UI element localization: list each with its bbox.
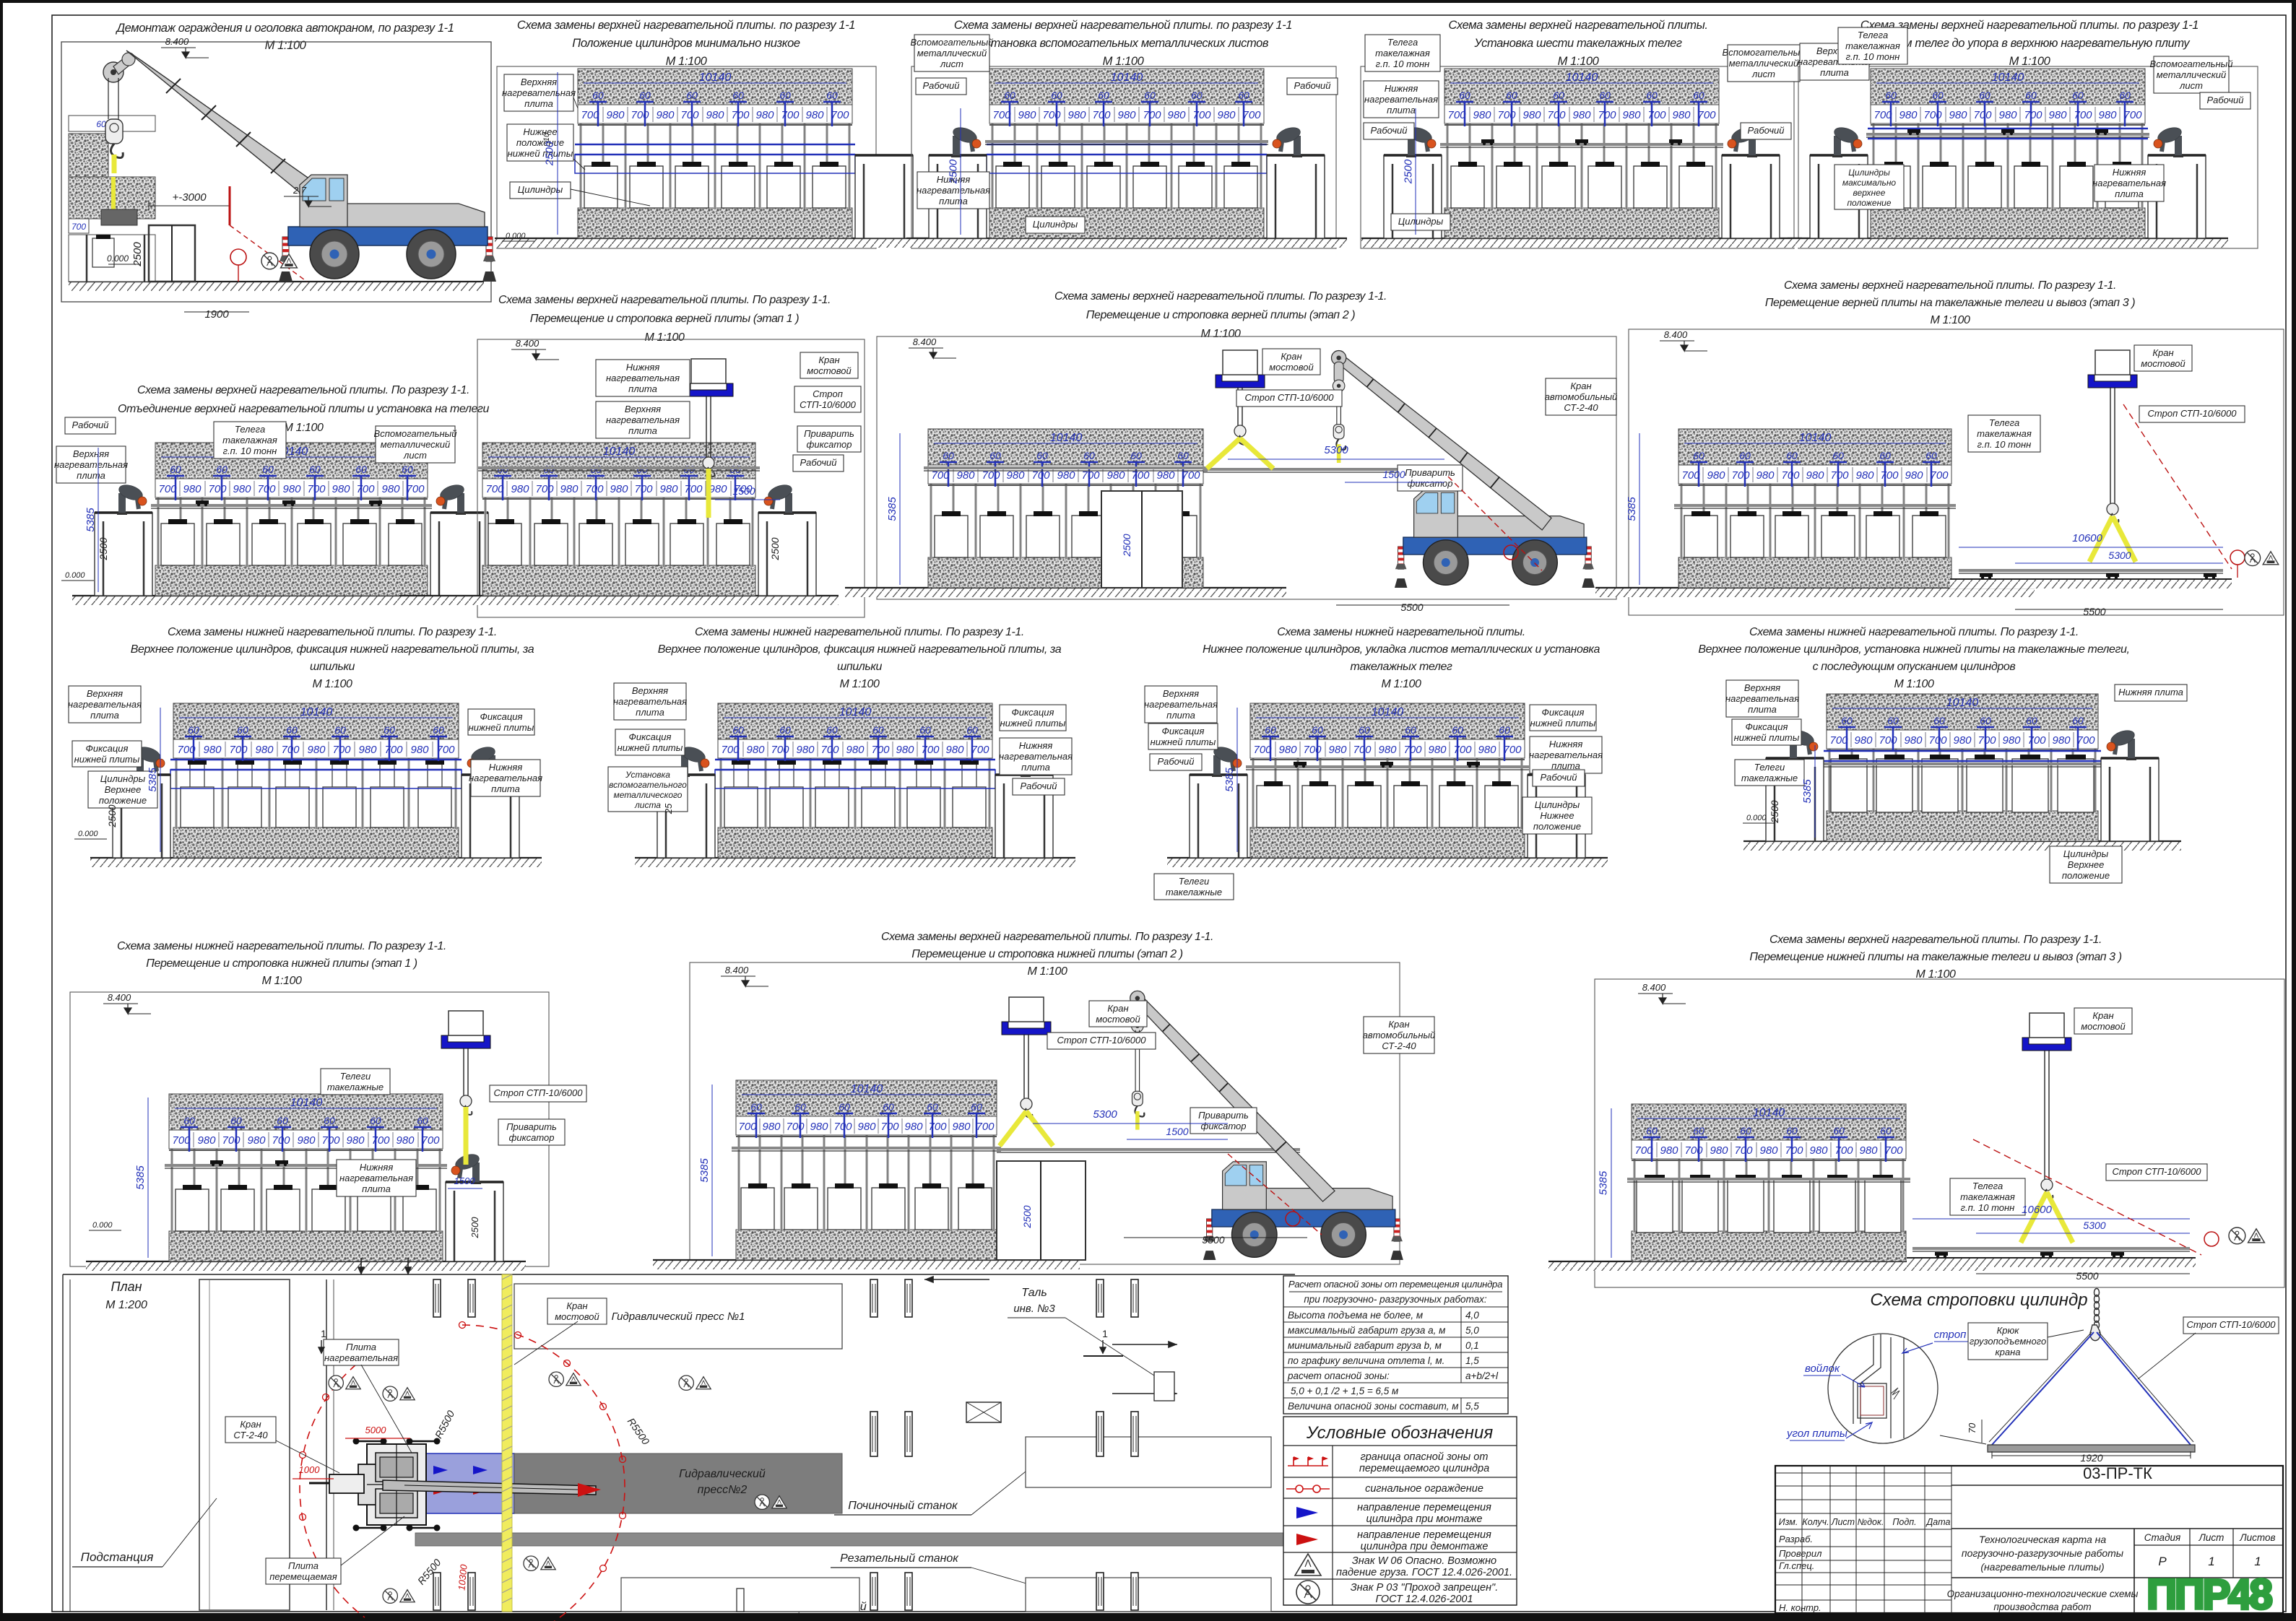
svg-text:Расчет опасной зоны от перемещ: Расчет опасной зоны от перемещения цилин… (1288, 1279, 1502, 1290)
svg-text:980: 980 (1117, 109, 1136, 121)
svg-text:положение: положение (516, 137, 564, 148)
svg-text:980: 980 (396, 1134, 415, 1147)
svg-text:Рабочий: Рабочий (1294, 80, 1330, 91)
svg-text:Фиксация: Фиксация (1012, 707, 1054, 718)
svg-text:980: 980 (332, 483, 350, 495)
svg-text:Схема замены нижней нагревател: Схема замены нижней нагревательной плиты… (1277, 626, 1525, 638)
svg-text:плита: плита (362, 1183, 391, 1194)
svg-text:980: 980 (1809, 1144, 1828, 1157)
svg-text:металлический: металлический (1729, 58, 1799, 69)
svg-text:Кран: Кран (240, 1419, 261, 1430)
svg-text:60: 60 (1098, 90, 1109, 101)
svg-text:Плита: Плита (288, 1560, 319, 1571)
svg-text:Фиксация: Фиксация (1746, 721, 1788, 732)
svg-text:плита: плита (1748, 704, 1777, 715)
svg-text:980: 980 (410, 744, 429, 756)
svg-text:5300: 5300 (1093, 1108, 1117, 1121)
svg-text:980: 980 (610, 483, 628, 495)
svg-text:М 1:100: М 1:100 (1027, 965, 1067, 978)
svg-text:980: 980 (511, 483, 529, 495)
svg-text:при погрузочно- разгрузочных р: при погрузочно- разгрузочных работах: (1304, 1294, 1487, 1305)
svg-text:1500: 1500 (732, 485, 755, 497)
svg-text:Телега: Телега (1387, 37, 1418, 48)
svg-text:Телега: Телега (1972, 1181, 2003, 1191)
svg-text:мостовой: мостовой (2141, 358, 2185, 369)
svg-text:60: 60 (779, 90, 791, 101)
svg-text:Гл.спец.: Гл.спец. (1779, 1560, 1814, 1571)
svg-text:План: План (111, 1279, 142, 1294)
svg-text:Дата: Дата (1925, 1517, 1951, 1527)
svg-text:плита: плита (636, 707, 664, 718)
svg-text:700: 700 (2123, 109, 2142, 121)
svg-text:700: 700 (680, 109, 699, 121)
svg-text:мостовой: мостовой (1269, 362, 1314, 373)
svg-text:положение: положение (1847, 198, 1891, 208)
svg-text:Нижнее: Нижнее (1540, 810, 1574, 821)
svg-text:700: 700 (222, 1134, 241, 1147)
svg-text:плита: плита (491, 783, 520, 794)
svg-text:Схема замены верхней нагревате: Схема замены верхней нагревательной плит… (137, 384, 469, 396)
svg-text:нагревательная: нагревательная (1529, 749, 1603, 760)
svg-text:М 1:100: М 1:100 (283, 422, 324, 434)
svg-text:60: 60 (1265, 724, 1276, 736)
svg-text:700: 700 (684, 483, 703, 495)
svg-text:700: 700 (1598, 109, 1616, 121)
svg-text:60: 60 (943, 450, 954, 461)
svg-text:нагревательная: нагревательная (502, 87, 576, 98)
svg-text:нагревательная: нагревательная (917, 185, 990, 196)
svg-text:60: 60 (794, 1101, 806, 1113)
svg-text:сигнальное ограждение: сигнальное ограждение (1365, 1483, 1483, 1495)
svg-text:5,0 + 0,1 /2 + 1,: 5,0 + 0,1 /2 + 1,5 = 6,5 м (1291, 1386, 1398, 1396)
svg-text:Схема замены верхней нагревате: Схема замены верхней нагревательной плит… (1784, 279, 2116, 292)
svg-text:700: 700 (2076, 734, 2095, 747)
svg-text:шпильки: шпильки (310, 661, 355, 673)
svg-text:60: 60 (592, 90, 604, 101)
svg-text:700: 700 (384, 744, 403, 756)
svg-text:980: 980 (1756, 469, 1775, 482)
svg-text:60: 60 (188, 724, 199, 736)
svg-text:60: 60 (402, 464, 413, 475)
svg-text:60: 60 (1177, 450, 1189, 461)
svg-text:8.400: 8.400 (165, 36, 189, 47)
svg-text:Подстанция: Подстанция (81, 1550, 154, 1564)
svg-text:980: 980 (282, 483, 301, 495)
svg-text:700: 700 (1503, 744, 1522, 756)
svg-text:Лист: Лист (2198, 1532, 2224, 1543)
svg-text:8.400: 8.400 (1664, 329, 1688, 340)
svg-text:700: 700 (1873, 109, 1892, 121)
svg-text:1: 1 (321, 1328, 326, 1339)
svg-text:Рабочий: Рабочий (1020, 781, 1057, 791)
svg-text:60: 60 (216, 464, 228, 475)
svg-text:700: 700 (281, 744, 300, 756)
svg-text:нижней плиты: нижней плиты (508, 148, 573, 159)
svg-text:60: 60 (334, 724, 346, 736)
svg-text:металлического: металлического (614, 790, 683, 800)
svg-text:минимальный габарит груза b, м: минимальный габарит груза b, м (1288, 1340, 1442, 1351)
svg-text:такелажная: такелажная (1960, 1191, 2015, 1202)
svg-text:Приварить: Приварить (804, 428, 854, 439)
svg-text:Телега: Телега (1989, 417, 2019, 428)
svg-text:60: 60 (370, 1115, 381, 1126)
svg-text:60: 60 (1693, 1125, 1704, 1137)
svg-text:плита: плита (628, 425, 657, 436)
svg-text:8.400: 8.400 (1642, 982, 1666, 993)
svg-text:60: 60 (1879, 450, 1891, 461)
svg-text:2500: 2500 (769, 537, 781, 560)
svg-text:5,5: 5,5 (1465, 1401, 1479, 1412)
svg-text:60: 60 (750, 1101, 762, 1113)
svg-text:60: 60 (1925, 450, 1937, 461)
svg-text:Фиксация: Фиксация (86, 743, 129, 754)
svg-text:60: 60 (1980, 715, 1991, 726)
svg-text:шпильки: шпильки (837, 661, 883, 673)
svg-text:2500: 2500 (469, 1217, 480, 1239)
svg-text:Фиксация: Фиксация (1162, 726, 1205, 736)
svg-text:700: 700 (1731, 469, 1750, 482)
svg-text:Разраб.: Разраб. (1779, 1534, 1813, 1544)
svg-text:60: 60 (2025, 90, 2037, 101)
svg-text:нагревательная: нагревательная (1364, 94, 1438, 105)
svg-text:10140: 10140 (1799, 432, 1832, 444)
svg-text:Нижняя: Нижняя (489, 762, 523, 773)
svg-text:металлический: металлический (381, 439, 451, 450)
svg-text:2500: 2500 (1403, 159, 1415, 184)
svg-text:г.п. 10 тонн: г.п. 10 тонн (1977, 439, 2032, 450)
svg-text:Знак W 06 Опасно. Возможно: Знак W 06 Опасно. Возможно (1352, 1555, 1496, 1567)
svg-text:a+b/2+l: a+b/2+l (1465, 1370, 1499, 1381)
svg-text:инв. №3: инв. №3 (1013, 1303, 1055, 1315)
svg-text:980: 980 (1855, 469, 1874, 482)
svg-text:700: 700 (1447, 109, 1466, 121)
svg-text:Телега: Телега (235, 424, 265, 435)
svg-text:60: 60 (1646, 1125, 1658, 1137)
svg-text:980: 980 (2098, 109, 2117, 121)
svg-text:980: 980 (1572, 109, 1591, 121)
svg-text:980: 980 (1998, 109, 2017, 121)
svg-text:980: 980 (945, 744, 964, 756)
svg-text:пресс№2: пресс№2 (698, 1484, 748, 1496)
svg-text:980: 980 (706, 109, 724, 121)
svg-text:М 1:100: М 1:100 (1894, 678, 1934, 690)
svg-text:Верхняя: Верхняя (521, 77, 557, 87)
svg-text:60: 60 (384, 724, 395, 736)
svg-text:нагревательная: нагревательная (613, 696, 687, 707)
svg-text:крана: крана (1996, 1347, 2021, 1357)
svg-text:5300: 5300 (1324, 444, 1348, 456)
svg-text:Нижнее: Нижнее (523, 126, 557, 137)
svg-text:направление перемещения: направление перемещения (1357, 1502, 1491, 1513)
svg-text:плита: плита (1166, 710, 1195, 721)
svg-text:цилиндра при демонтаже: цилиндра при демонтаже (1361, 1541, 1489, 1552)
svg-text:10140: 10140 (1992, 71, 2024, 84)
svg-text:980: 980 (1278, 744, 1297, 756)
svg-text:Схема замены верхней нагревате: Схема замены верхней нагревательной плит… (498, 294, 831, 306)
svg-text:нагревательная: нагревательная (606, 373, 680, 383)
svg-text:Схема замены нижней нагревател: Схема замены нижней нагревательной плиты… (695, 626, 1024, 638)
svg-text:8.400: 8.400 (913, 336, 937, 347)
svg-text:5385: 5385 (1223, 768, 1236, 792)
svg-text:700: 700 (721, 744, 740, 756)
svg-text:Строп СТП-10/6000: Строп СТП-10/6000 (1057, 1035, 1147, 1046)
svg-text:700: 700 (177, 744, 196, 756)
svg-text:(нагревательные плиты): (нагревательные плиты) (1980, 1561, 2104, 1573)
svg-text:Организационно-технологические: Организационно-технологические схемы (1947, 1589, 2139, 1599)
svg-text:60: 60 (1452, 724, 1463, 736)
svg-text:Рабочий: Рабочий (1157, 756, 1194, 767)
svg-text:5500: 5500 (2083, 606, 2105, 617)
svg-text:10140: 10140 (1946, 697, 1979, 709)
svg-text:верхнее: верхнее (1853, 188, 1886, 198)
svg-text:фиксатор: фиксатор (1201, 1121, 1247, 1131)
svg-text:980: 980 (1707, 469, 1725, 482)
svg-text:60: 60 (732, 724, 744, 736)
svg-text:980: 980 (1217, 109, 1236, 121)
svg-text:980: 980 (659, 483, 678, 495)
svg-text:60: 60 (1459, 90, 1470, 101)
svg-text:5385: 5385 (698, 1158, 711, 1183)
svg-text:5000: 5000 (365, 1425, 387, 1435)
svg-text:Подъем телег до упора в верхню: Подъем телег до упора в верхнюю нагреват… (1870, 37, 2191, 50)
svg-text:700: 700 (634, 483, 653, 495)
svg-text:0.000: 0.000 (1746, 814, 1767, 822)
svg-text:60: 60 (1786, 450, 1798, 461)
svg-text:5385: 5385 (1626, 497, 1638, 521)
svg-text:980: 980 (904, 1121, 923, 1133)
svg-text:700: 700 (1684, 1144, 1703, 1157)
svg-text:5500: 5500 (1202, 1234, 1224, 1246)
svg-text:Стадия: Стадия (2144, 1532, 2181, 1543)
svg-text:700: 700 (356, 483, 375, 495)
svg-text:мостовой: мостовой (1096, 1014, 1140, 1025)
svg-text:нижней плиты: нижней плиты (1530, 718, 1596, 729)
svg-text:автомобильный: автомобильный (1363, 1030, 1436, 1040)
svg-text:М 1:100: М 1:100 (1915, 968, 1956, 981)
svg-text:Отъединение верхней нагревател: Отъединение верхней нагревательной плиты… (118, 403, 490, 415)
svg-text:войлок: войлок (1805, 1363, 1840, 1375)
svg-text:60: 60 (779, 724, 791, 736)
svg-text:980: 980 (2048, 109, 2067, 121)
svg-text:60: 60 (1693, 450, 1704, 461)
svg-text:60: 60 (1051, 90, 1062, 101)
svg-text:Нижнее положение цилиндров, ук: Нижнее положение цилиндров, укладка лист… (1203, 643, 1600, 656)
svg-text:70: 70 (1967, 1422, 1977, 1433)
svg-text:10140: 10140 (290, 1097, 323, 1109)
svg-text:700: 700 (833, 1121, 852, 1133)
svg-text:Установка шести такелажных тел: Установка шести такелажных телег (1473, 37, 1682, 50)
svg-text:700: 700 (880, 1121, 899, 1133)
svg-text:980: 980 (656, 109, 675, 121)
svg-text:60: 60 (2026, 715, 2037, 726)
svg-text:980: 980 (1660, 1144, 1678, 1157)
svg-text:8.400: 8.400 (725, 965, 749, 975)
svg-text:Цилиндры: Цилиндры (1033, 219, 1078, 230)
svg-text:700: 700 (1880, 469, 1899, 482)
svg-text:700: 700 (631, 109, 649, 121)
svg-text:700: 700 (321, 1134, 340, 1147)
svg-text:1,5: 1,5 (1465, 1355, 1479, 1366)
svg-text:Гидравлический: Гидравлический (679, 1468, 766, 1480)
svg-text:нагревательная: нагревательная (54, 459, 128, 470)
svg-text:5500: 5500 (2076, 1270, 2098, 1282)
svg-text:Вспомогательный: Вспомогательный (1723, 47, 1806, 58)
svg-text:700: 700 (1829, 734, 1848, 747)
svg-text:980: 980 (709, 483, 727, 495)
svg-text:1: 1 (2254, 1555, 2261, 1568)
svg-text:60: 60 (686, 90, 698, 101)
svg-text:60: 60 (2119, 90, 2131, 101)
svg-text:нижней плиты: нижней плиты (1734, 732, 1800, 743)
svg-text:700: 700 (992, 109, 1011, 121)
svg-text:980: 980 (2052, 734, 2071, 747)
svg-text:60: 60 (1144, 90, 1156, 101)
svg-text:положение: положение (1533, 821, 1581, 832)
svg-text:700: 700 (1253, 744, 1272, 756)
svg-text:такелажная: такелажная (1977, 428, 2032, 439)
svg-text:700: 700 (307, 483, 326, 495)
svg-text:Цилиндры: Цилиндры (1398, 216, 1444, 227)
svg-text:Кран: Кран (1107, 1003, 1128, 1014)
svg-text:строп: строп (1934, 1329, 1967, 1341)
svg-text:60: 60 (826, 724, 838, 736)
svg-text:мостовой: мостовой (555, 1311, 599, 1322)
svg-text:60: 60 (277, 1115, 288, 1126)
svg-text:Кран: Кран (2092, 1010, 2113, 1021)
svg-text:700: 700 (771, 744, 789, 756)
svg-text:М 1:200: М 1:200 (105, 1299, 147, 1311)
svg-text:Схема замены нижней нагревател: Схема замены нижней нагревательной плиты… (117, 940, 446, 952)
svg-text:60: 60 (433, 724, 444, 736)
svg-text:60: 60 (1312, 724, 1323, 736)
svg-text:60: 60 (1786, 1125, 1798, 1137)
svg-text:Рабочий: Рабочий (72, 420, 108, 430)
svg-text:10140: 10140 (300, 706, 333, 718)
svg-text:№док.: №док. (1858, 1517, 1884, 1527)
svg-text:700: 700 (485, 483, 504, 495)
svg-text:980: 980 (1905, 469, 1923, 482)
svg-text:1920: 1920 (2080, 1452, 2102, 1464)
svg-text:1500: 1500 (1382, 469, 1405, 480)
svg-text:700: 700 (1634, 1144, 1653, 1157)
svg-text:нагревательная: нагревательная (2092, 178, 2166, 188)
svg-text:60: 60 (826, 90, 838, 101)
svg-text:700: 700 (1497, 109, 1516, 121)
svg-text:60: 60 (639, 90, 651, 101)
svg-text:Телега: Телега (1858, 30, 1888, 40)
svg-text:расчет опасной зоны:: расчет опасной зоны: (1287, 1370, 1390, 1381)
svg-text:Рабочий: Рабочий (1540, 772, 1577, 783)
svg-text:Гидравлический пресс №1: Гидравлический пресс №1 (612, 1311, 745, 1323)
svg-text:Рабочий: Рабочий (800, 457, 836, 468)
svg-text:980: 980 (197, 1134, 216, 1147)
svg-text:700: 700 (928, 1121, 947, 1133)
svg-text:Верхняя: Верхняя (87, 688, 123, 699)
svg-text:980: 980 (1904, 734, 1923, 747)
svg-text:по графику величина отлета l,: по графику величина отлета l, м. (1288, 1355, 1444, 1366)
svg-text:980: 980 (297, 1134, 316, 1147)
svg-text:Верхняя: Верхняя (1163, 688, 1199, 699)
svg-text:+-3000: +-3000 (172, 191, 207, 204)
svg-text:980: 980 (1622, 109, 1641, 121)
svg-text:Строп: Строп (813, 388, 843, 399)
svg-text:М 1:100: М 1:100 (1930, 314, 1970, 326)
svg-text:700: 700 (581, 109, 599, 121)
svg-text:Перемещение и строповка верней: Перемещение и строповка верней плиты (эт… (1086, 309, 1356, 321)
svg-text:М 1:100: М 1:100 (1200, 328, 1241, 340)
svg-text:980: 980 (746, 744, 765, 756)
svg-text:Подп.: Подп. (1892, 1517, 1916, 1527)
svg-text:60: 60 (417, 1115, 428, 1126)
svg-text:700: 700 (786, 1121, 805, 1133)
svg-text:60: 60 (1599, 90, 1611, 101)
svg-text:Величина опасной зоны составит: Величина опасной зоны составит, м (1288, 1401, 1459, 1412)
svg-text:60: 60 (309, 464, 321, 475)
svg-text:М 1:100: М 1:100 (1558, 55, 1600, 68)
svg-text:60: 60 (237, 724, 248, 736)
svg-text:нижней плиты: нижней плиты (618, 742, 683, 753)
svg-text:980: 980 (1953, 734, 1972, 747)
svg-text:г.п. 10 тонн: г.п. 10 тонн (1846, 51, 1900, 62)
svg-text:нагревательная: нагревательная (68, 699, 142, 710)
svg-text:980: 980 (560, 483, 579, 495)
svg-text:700: 700 (731, 109, 750, 121)
svg-text:980: 980 (1899, 109, 1918, 121)
svg-text:5385: 5385 (134, 1165, 147, 1190)
svg-text:плита: плита (1021, 762, 1050, 773)
svg-text:Схема замены верхней нагревате: Схема замены верхней нагревательной плит… (1769, 934, 2102, 946)
svg-text:М 1:100: М 1:100 (839, 678, 880, 690)
svg-text:60: 60 (1405, 724, 1416, 736)
svg-text:10600: 10600 (2072, 532, 2102, 544)
svg-text:Строп СТП-10/6000: Строп СТП-10/6000 (1245, 392, 1335, 403)
svg-text:0.000: 0.000 (107, 253, 129, 264)
svg-text:Фиксация: Фиксация (629, 731, 672, 742)
svg-text:Строп СТП-10/6000: Строп СТП-10/6000 (2187, 1319, 2276, 1330)
svg-text:980: 980 (755, 109, 774, 121)
svg-text:Верхнее положение цилиндров, ф: Верхнее положение цилиндров, фиксация ни… (131, 643, 534, 656)
svg-text:металлический: металлический (2157, 69, 2227, 80)
svg-text:Технологическая карта на: Технологическая карта на (1979, 1534, 2107, 1545)
svg-text:Высота подъема не более, м: Высота подъема не более, м (1288, 1310, 1423, 1321)
svg-text:10140: 10140 (851, 1083, 883, 1095)
svg-text:2500: 2500 (948, 159, 960, 184)
svg-text:Нижняя: Нижняя (1385, 83, 1418, 94)
svg-text:10: 10 (542, 132, 551, 142)
svg-text:700: 700 (1042, 109, 1061, 121)
svg-text:60: 60 (1885, 90, 1897, 101)
svg-text:980: 980 (183, 483, 202, 495)
svg-text:М 1:100: М 1:100 (644, 331, 685, 344)
svg-text:60: 60 (989, 450, 1001, 461)
svg-text:нагревательная: нагревательная (1144, 699, 1218, 710)
svg-text:Колуч.: Колуч. (1802, 1517, 1829, 1527)
svg-text:700: 700 (371, 1134, 390, 1147)
svg-text:фиксатор: фиксатор (1408, 478, 1453, 489)
svg-text:угол плиты: угол плиты (1786, 1427, 1847, 1440)
svg-text:700: 700 (1973, 109, 1992, 121)
svg-text:нагревательная: нагревательная (324, 1352, 398, 1363)
svg-text:Верхнее положение цилиндров, ф: Верхнее положение цилиндров, фиксация ни… (658, 643, 1062, 656)
svg-text:Вспомогательный: Вспомогательный (2150, 58, 2233, 69)
svg-text:0.000: 0.000 (506, 232, 526, 240)
svg-text:60: 60 (170, 464, 181, 475)
svg-text:5500: 5500 (1400, 601, 1423, 613)
svg-text:плита: плита (1820, 67, 1849, 78)
svg-text:980: 980 (307, 744, 326, 756)
svg-text:980: 980 (857, 1121, 876, 1133)
svg-text:700: 700 (820, 744, 839, 756)
